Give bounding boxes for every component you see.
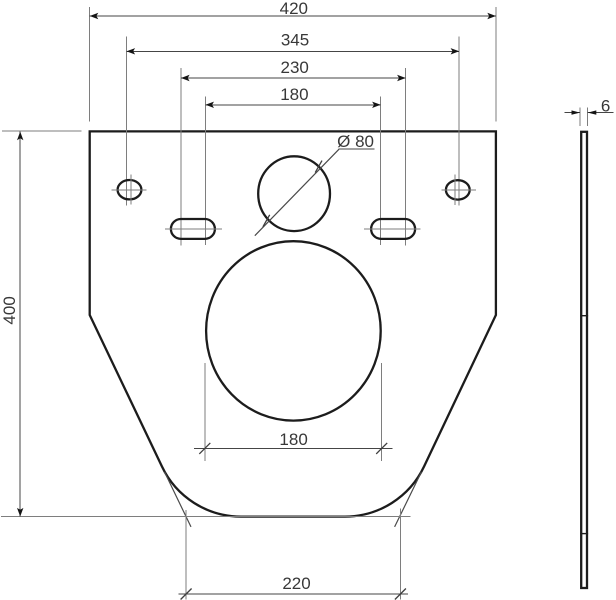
svg-text:230: 230 <box>281 58 309 77</box>
svg-text:180: 180 <box>279 430 307 449</box>
svg-text:6: 6 <box>601 97 610 116</box>
svg-text:180: 180 <box>280 85 308 104</box>
svg-text:345: 345 <box>281 30 309 49</box>
svg-text:420: 420 <box>280 0 308 18</box>
svg-text:400: 400 <box>0 296 19 324</box>
svg-text:220: 220 <box>282 574 310 593</box>
svg-text:Ø 80: Ø 80 <box>337 132 374 151</box>
